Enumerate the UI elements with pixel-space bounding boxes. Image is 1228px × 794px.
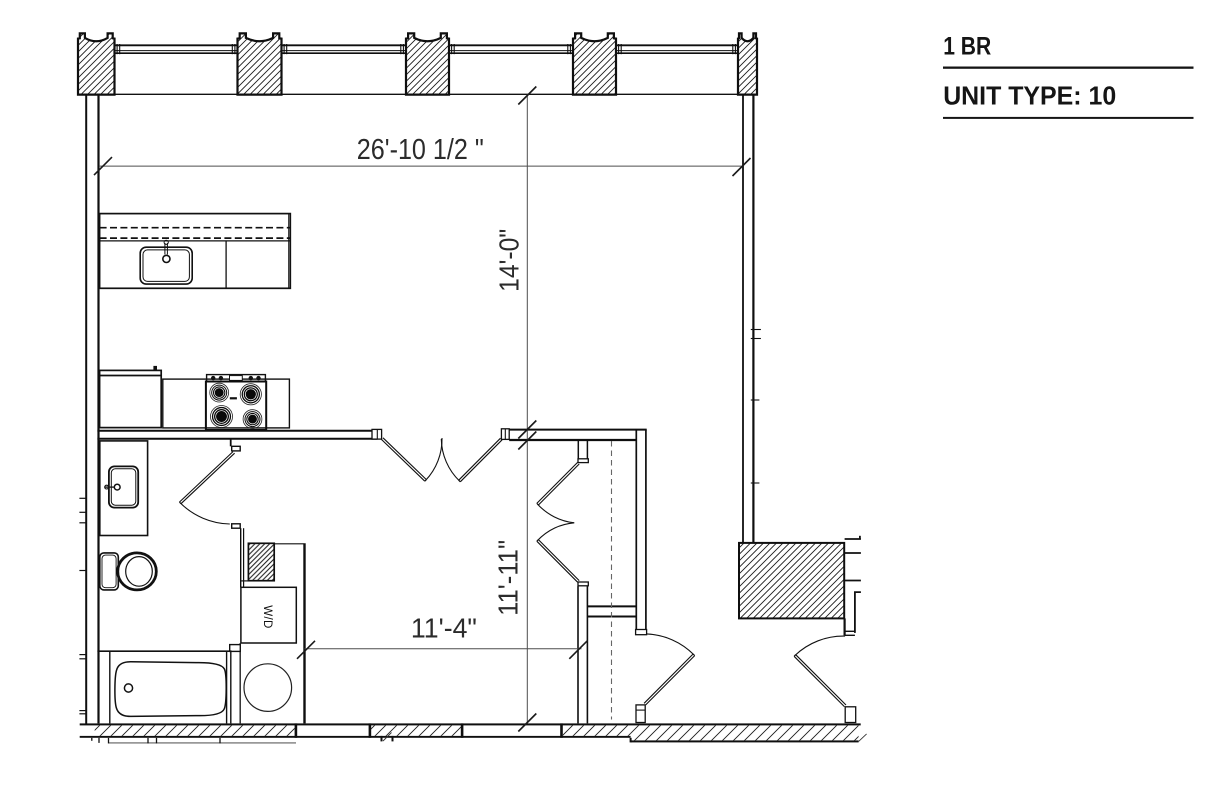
svg-text:11'-4": 11'-4"	[411, 612, 477, 643]
svg-text:W/D: W/D	[261, 605, 273, 628]
svg-text:11'-11": 11'-11"	[493, 540, 524, 616]
svg-text:UNIT TYPE: 10: UNIT TYPE: 10	[943, 80, 1116, 110]
svg-text:26'-10 1/2 ": 26'-10 1/2 "	[357, 134, 484, 166]
svg-text:1 BR: 1 BR	[943, 33, 991, 61]
svg-text:14'-0": 14'-0"	[493, 229, 524, 292]
